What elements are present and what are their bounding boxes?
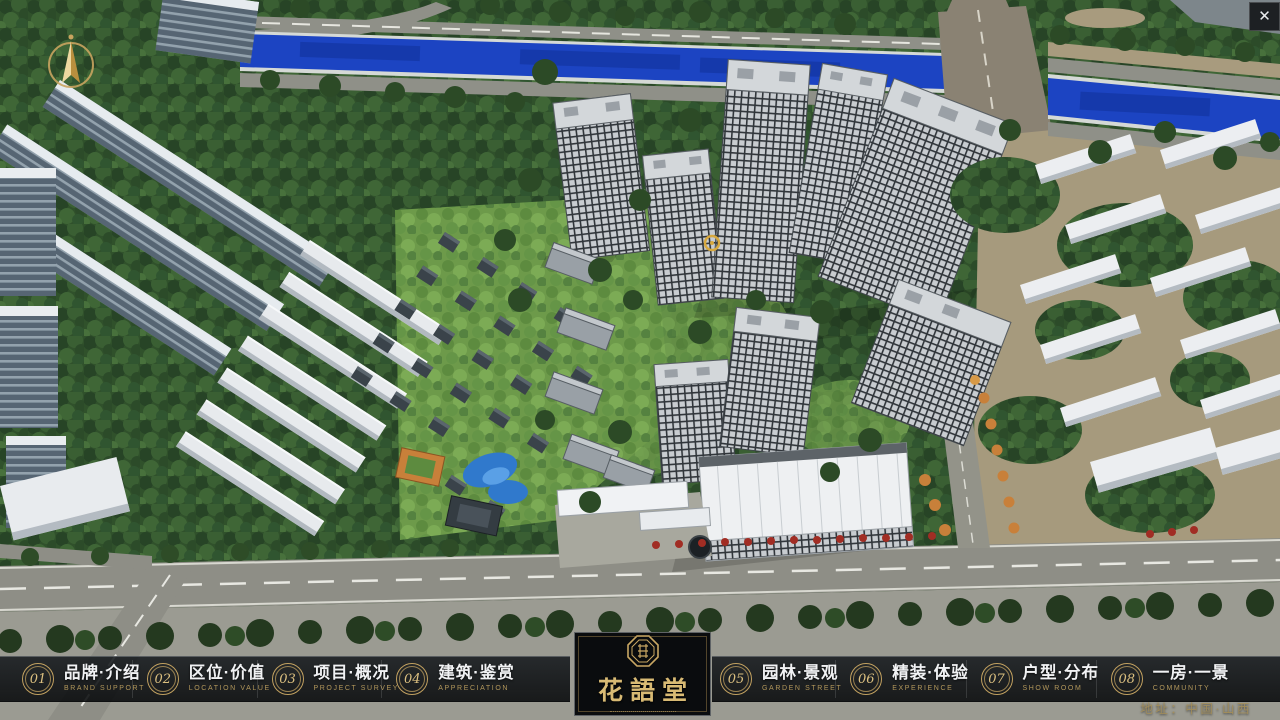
nav-item-brand[interactable]: 01 品牌·介绍 BRAND SUPPORT bbox=[22, 660, 132, 698]
logo-caption bbox=[610, 711, 676, 715]
nav-item-architecture[interactable]: 04 建筑·鉴赏 APPRECIATION bbox=[381, 660, 506, 698]
nav-label-zh: 品牌·介绍 bbox=[64, 664, 132, 683]
nav-item-garden[interactable]: 05 园林·景观 GARDEN STREET bbox=[720, 660, 835, 698]
logo-seal-icon bbox=[626, 634, 660, 668]
aerial-masterplan-render[interactable] bbox=[0, 0, 1280, 720]
close-icon: ✕ bbox=[1258, 7, 1271, 25]
nav-item-location[interactable]: 02 区位·价值 LOCATION VALUE bbox=[132, 660, 257, 698]
nav-label-en: BRAND SUPPORT bbox=[64, 685, 132, 693]
nav-number-badge: 03 bbox=[272, 663, 304, 695]
nav-label-zh: 精装·体验 bbox=[892, 664, 965, 683]
nav-bar-left: 01 品牌·介绍 BRAND SUPPORT 02 区位·价值 LOCATION… bbox=[0, 656, 570, 702]
nav-number-badge: 02 bbox=[147, 663, 179, 695]
nav-label-zh: 区位·价值 bbox=[189, 664, 257, 683]
nav-item-floorplan[interactable]: 07 户型·分布 SHOW ROOM bbox=[966, 660, 1096, 698]
project-address: 地址：中国·山西 bbox=[1140, 698, 1252, 717]
nav-label-en: APPRECIATION bbox=[438, 685, 506, 693]
presentation-stage: ✕ 01 品牌·介绍 BRAND SUPPORT 02 区位·价值 LOCATI… bbox=[0, 0, 1280, 720]
entrance-area bbox=[555, 481, 712, 568]
nav-label-en: GARDEN STREET bbox=[762, 685, 835, 693]
nav-number-badge: 07 bbox=[981, 663, 1013, 695]
nav-item-interior[interactable]: 06 精装·体验 EXPERIENCE bbox=[835, 660, 965, 698]
nav-label-en: EXPERIENCE bbox=[892, 685, 965, 693]
nav-label-zh: 项目·概况 bbox=[314, 664, 382, 683]
project-logo[interactable]: 花語堂 bbox=[574, 632, 711, 716]
nav-item-views[interactable]: 08 一房·一景 COMMUNITY bbox=[1096, 660, 1226, 698]
nav-label-en: COMMUNITY bbox=[1153, 685, 1226, 693]
nav-label-en: PROJECT SURVEY bbox=[314, 685, 382, 693]
nav-label-en: LOCATION VALUE bbox=[189, 685, 257, 693]
nav-item-project[interactable]: 03 项目·概况 PROJECT SURVEY bbox=[257, 660, 382, 698]
nav-number-badge: 05 bbox=[720, 663, 752, 695]
nav-label-zh: 一房·一景 bbox=[1153, 664, 1226, 683]
nav-label-zh: 户型·分布 bbox=[1023, 664, 1096, 683]
logo-name: 花語堂 bbox=[598, 671, 694, 707]
nav-label-zh: 建筑·鉴赏 bbox=[438, 664, 506, 683]
nav-bar-right: 05 园林·景观 GARDEN STREET 06 精装·体验 EXPERIEN… bbox=[712, 656, 1280, 702]
nav-label-zh: 园林·景观 bbox=[762, 664, 835, 683]
nav-number-badge: 06 bbox=[850, 663, 882, 695]
nav-number-badge: 08 bbox=[1111, 663, 1143, 695]
nav-number-badge: 04 bbox=[396, 663, 428, 695]
nav-label-en: SHOW ROOM bbox=[1023, 685, 1096, 693]
nav-number-badge: 01 bbox=[22, 663, 54, 695]
close-button[interactable]: ✕ bbox=[1249, 2, 1280, 31]
